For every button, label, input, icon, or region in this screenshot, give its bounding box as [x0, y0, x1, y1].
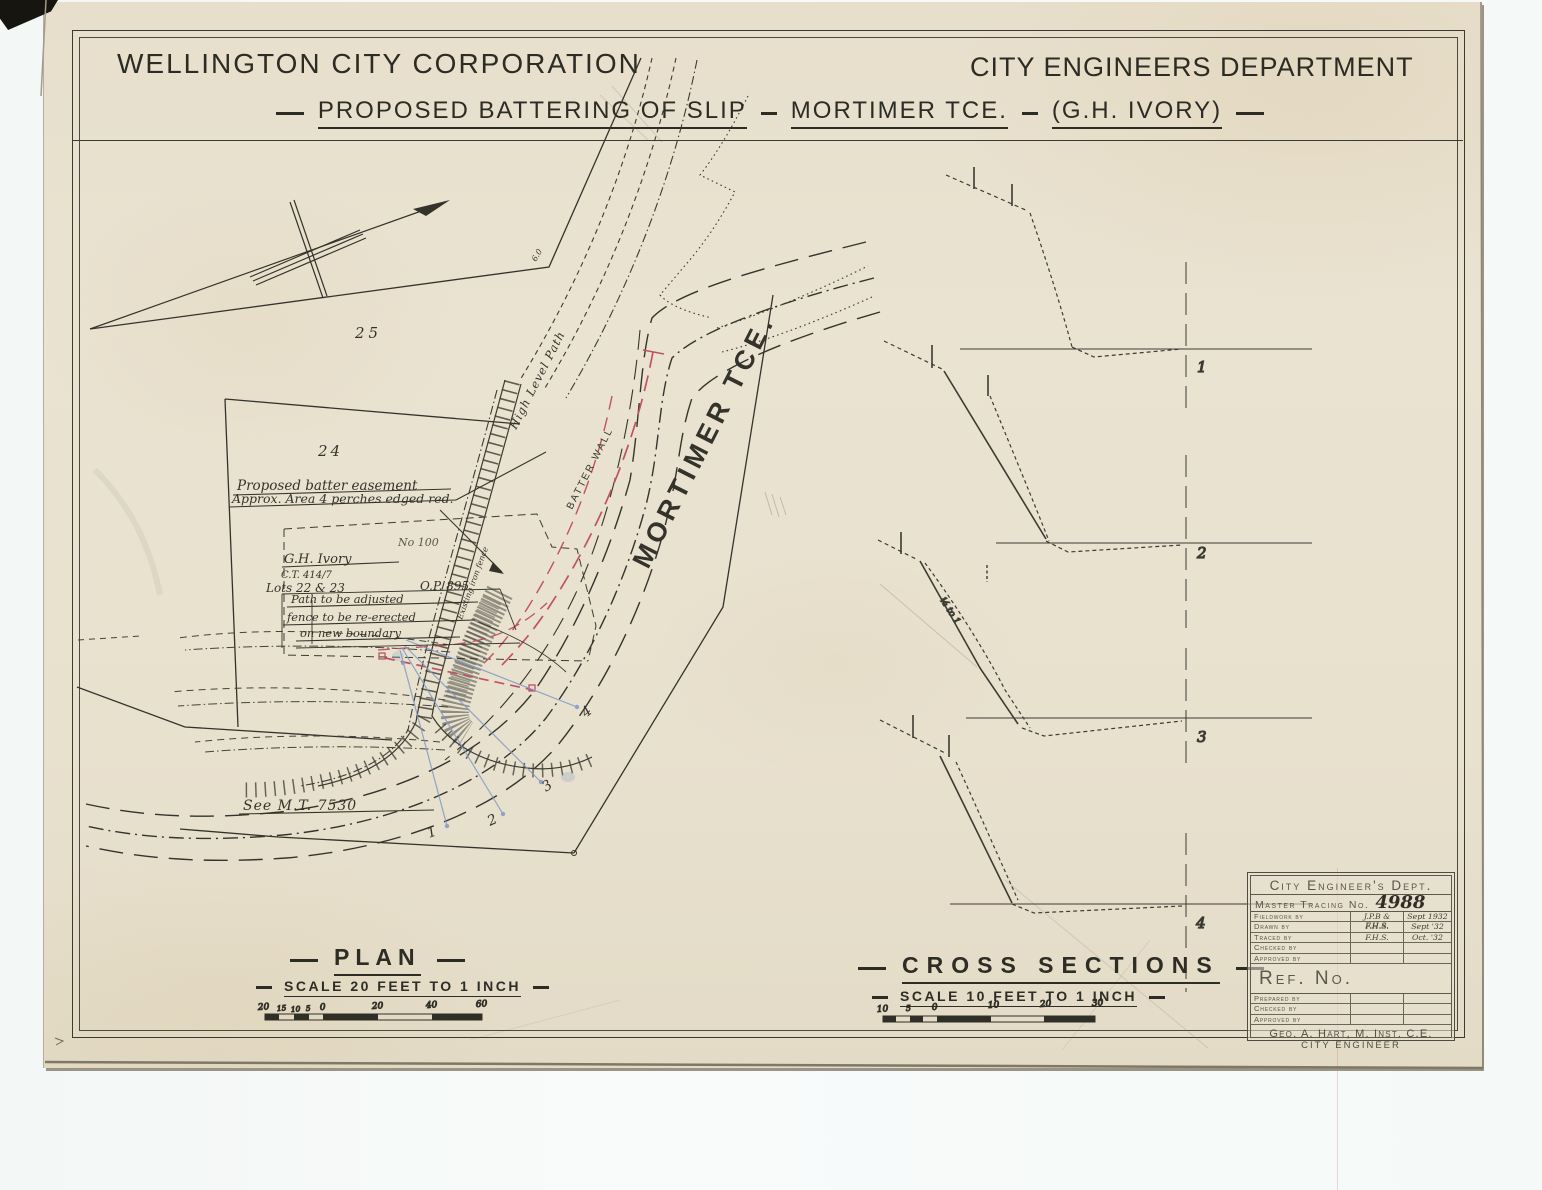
table-row: Drawn by F.H.S. Sept '32: [1251, 922, 1451, 932]
title-block-inner: City Engineer's Dept. Master Tracing No.…: [1250, 875, 1452, 1038]
ray-dot: [501, 812, 505, 816]
row-date: [1404, 943, 1451, 952]
pencil-note: No 100: [397, 536, 439, 549]
scalebar-seg: [294, 1014, 309, 1020]
row-label: Approved by: [1251, 1015, 1351, 1024]
dotted-track: [717, 266, 868, 328]
plan-title-text: PLAN: [334, 944, 421, 976]
plan-tick-20R: 20: [371, 1001, 384, 1012]
plan-tick-5: 5: [306, 1004, 312, 1013]
lot24-north-boundary: [225, 399, 520, 424]
street-name-label: MORTIMER TCE.: [627, 309, 781, 573]
scalebar-seg: [432, 1014, 482, 1020]
master-tracing-row: Master Tracing No. 4988: [1251, 895, 1451, 912]
section-number-3: 3: [1197, 728, 1207, 746]
s4-road-dip: [1012, 904, 1182, 913]
table-row: Prepared by: [1251, 994, 1451, 1004]
row-value: F.H.S.: [1351, 922, 1404, 931]
table-row: Fieldwork by J.P.B & F.H.S. Sept 1932: [1251, 912, 1451, 922]
plan-scale-text: SCALE 20 FEET TO 1 INCH: [284, 978, 521, 997]
plan-marker-3: 3: [539, 777, 556, 795]
dash-ornament: [256, 986, 272, 989]
cross-section-3: ½ to 1 3: [878, 532, 1312, 768]
engineer-name: Geo. A. Hart, M. Inst. C.E.: [1251, 1028, 1451, 1040]
row-date: [1404, 1004, 1451, 1013]
plan-tick-0: 0: [320, 1003, 327, 1013]
path-fence-dashdot: [566, 60, 697, 398]
row-value: F.H.S.: [1351, 933, 1404, 942]
s2-batter-solid: [944, 371, 1046, 539]
scalebar-seg: [265, 1014, 279, 1020]
paper-fold-line: [41, 0, 46, 96]
road-edge-right: [86, 312, 880, 860]
scalebar-seg: [323, 1014, 378, 1020]
plan-marker-1: 1: [425, 824, 439, 842]
owner-name: G.H. Ivory: [284, 552, 352, 567]
s1-ticks: [974, 167, 1012, 206]
leader-arrowhead: [489, 562, 504, 574]
master-tracing-label: Master Tracing No.: [1255, 899, 1369, 911]
dash-ornament: [290, 959, 318, 962]
engineer-title: CITY ENGINEER: [1251, 1040, 1451, 1051]
table-row: Traced by F.H.S. Oct. '32: [1251, 933, 1451, 943]
section-rays: [392, 640, 579, 828]
path-note-line3: on new boundary: [300, 626, 402, 640]
row-value: [1351, 1015, 1404, 1024]
plan-section-title: PLAN: [290, 944, 465, 976]
table-row: Approved by: [1251, 954, 1451, 964]
section-number-4: 4: [1195, 914, 1206, 932]
red-corner-square: [379, 653, 385, 659]
cross-section-1: 1: [946, 167, 1312, 408]
pencil-strokes: [765, 492, 786, 517]
cross-section-2: 2: [884, 341, 1312, 628]
row-date: [1404, 954, 1451, 963]
pencil-slope-line: [880, 584, 977, 667]
scalebar-seg: [883, 1016, 896, 1022]
row-value: [1351, 943, 1404, 952]
title-block-upper-table: Fieldwork by J.P.B & F.H.S. Sept 1932 Dr…: [1251, 912, 1451, 964]
plan-marker-2: 2: [484, 811, 500, 830]
row-value: J.P.B & F.H.S.: [1351, 912, 1404, 921]
s3-ground-slope: [925, 563, 1030, 728]
row-date: Sept '32: [1404, 922, 1451, 931]
row-label: Approved by: [1251, 954, 1351, 963]
path-note-line2: fence to be re-erected: [286, 610, 416, 624]
north-arrow-head: [413, 200, 450, 216]
north-cross-line: [250, 230, 360, 277]
boundary-top: [90, 58, 641, 329]
row-date: Oct. '32: [1404, 933, 1451, 942]
boundary-south: [180, 829, 574, 853]
see-reference-note: See M.T. 7530: [243, 798, 357, 814]
paper-bottom-edge: [45, 1062, 1483, 1068]
title-block: City Engineer's Dept. Master Tracing No.…: [1247, 872, 1455, 1041]
s3-road-dip: [1022, 721, 1182, 736]
north-arrow: [90, 200, 450, 329]
plan-tick-10: 10: [291, 1004, 301, 1014]
north-cross-line: [294, 200, 327, 296]
s2-ground-slope: [990, 396, 1049, 541]
row-value: [1351, 994, 1404, 1003]
easement-note-line2: Approx. Area 4 perches edged red.: [231, 491, 454, 506]
zigzag-path: [660, 96, 748, 318]
plan-labels: 25 24 Proposed batter easement Approx. A…: [231, 247, 781, 841]
ref-number-label: Ref. No.: [1251, 964, 1451, 994]
s1-ground-upper: [946, 175, 1028, 211]
contour-dashed: [170, 688, 445, 700]
title-block-lower-table: Prepared by Checked by Approved by: [1251, 994, 1451, 1025]
section-number-1: 1: [1197, 358, 1207, 376]
north-arrow-shaft: [90, 204, 441, 329]
contour-dashdot: [178, 702, 448, 707]
s2-ticks: [932, 345, 988, 396]
path-edge-dashed: [520, 58, 652, 380]
lot-number-25: 25: [354, 324, 382, 342]
hatch-band-west: [245, 718, 424, 790]
table-row: Approved by: [1251, 1015, 1451, 1025]
plan-tick-15: 15: [277, 1003, 287, 1013]
lot-number-24: 24: [317, 442, 343, 460]
row-value: [1351, 954, 1404, 963]
scalebar-seg: [1044, 1016, 1095, 1022]
table-row: Checked by: [1251, 943, 1451, 953]
cross-sections-scale-text: SCALE 10 FEET TO 1 INCH: [900, 988, 1137, 1007]
scalebar-seg: [937, 1016, 991, 1022]
pencil-mark-corner: [55, 1038, 63, 1045]
dash-ornament: [872, 996, 888, 999]
s4-ticks: [913, 715, 949, 757]
plan-scale-label: SCALE 20 FEET TO 1 INCH: [256, 978, 549, 997]
contour-fingers: [78, 632, 450, 752]
pencil-smudge: [95, 470, 160, 595]
s2-ground-upper: [884, 341, 942, 369]
row-label: Fieldwork by: [1251, 912, 1351, 921]
section-number-2: 2: [1196, 544, 1207, 562]
ray-dot: [401, 661, 405, 665]
plan-tick-40: 40: [425, 1000, 438, 1011]
plan-tick-60: 60: [476, 999, 488, 1010]
cross-sections-scale-label: SCALE 10 FEET TO 1 INCH: [872, 988, 1165, 1007]
plan-boundaries: [77, 58, 773, 856]
zigzag-track: [660, 96, 872, 352]
row-value: [1351, 1004, 1404, 1013]
master-tracing-number: 4988: [1375, 896, 1425, 910]
row-date: [1404, 1015, 1451, 1024]
s4-batter-solid: [940, 756, 1012, 903]
scalebar-seg: [910, 1016, 923, 1022]
dash-ornament: [437, 959, 465, 962]
dash-ornament: [858, 967, 886, 970]
s4-ground-slope: [956, 762, 1018, 900]
row-label: Drawn by: [1251, 922, 1351, 931]
paper-right-edge: [1481, 2, 1483, 1068]
row-label: Prepared by: [1251, 994, 1351, 1003]
plan-marker-4: 4: [578, 703, 596, 722]
plan-tick-20L: 20: [257, 1002, 270, 1013]
cross-sections-title: CROSS SECTIONS: [858, 952, 1264, 984]
row-label: Traced by: [1251, 933, 1351, 942]
lot24-west-boundary: [225, 399, 238, 727]
dash-ornament: [533, 986, 549, 989]
row-date: Sept 1932: [1404, 912, 1451, 921]
blue-smudge: [561, 772, 575, 782]
plan-scale-bar: 20 15 10 5 0 20 40 60: [257, 999, 488, 1020]
ray-dot: [445, 824, 449, 828]
scratch-line: [612, 86, 662, 142]
row-label: Checked by: [1251, 1004, 1351, 1013]
s3-batter-solid: [920, 561, 1018, 724]
cross-sections-title-text: CROSS SECTIONS: [902, 952, 1220, 984]
table-row: Checked by: [1251, 1004, 1451, 1014]
contour-stub: [78, 636, 140, 640]
s1-batter-slope: [1030, 213, 1072, 347]
s3-ground-upper: [878, 540, 918, 560]
row-label: Checked by: [1251, 943, 1351, 952]
scratch-line: [470, 1000, 620, 1040]
high-level-path-label: High Level Path: [506, 328, 568, 432]
owner-ct: C.T. 414/7: [281, 570, 332, 581]
row-date: [1404, 994, 1451, 1003]
blue-smudge: [392, 651, 404, 661]
contour-dashdot: [205, 747, 445, 752]
boundary-southwest: [77, 687, 392, 740]
pathnote-leader: [478, 622, 566, 672]
path-note-line1: Path to be adjusted: [290, 592, 404, 606]
north-cross-line: [290, 202, 323, 298]
bend-value-label: 6.0: [530, 247, 544, 263]
dash-ornament: [1149, 996, 1165, 999]
